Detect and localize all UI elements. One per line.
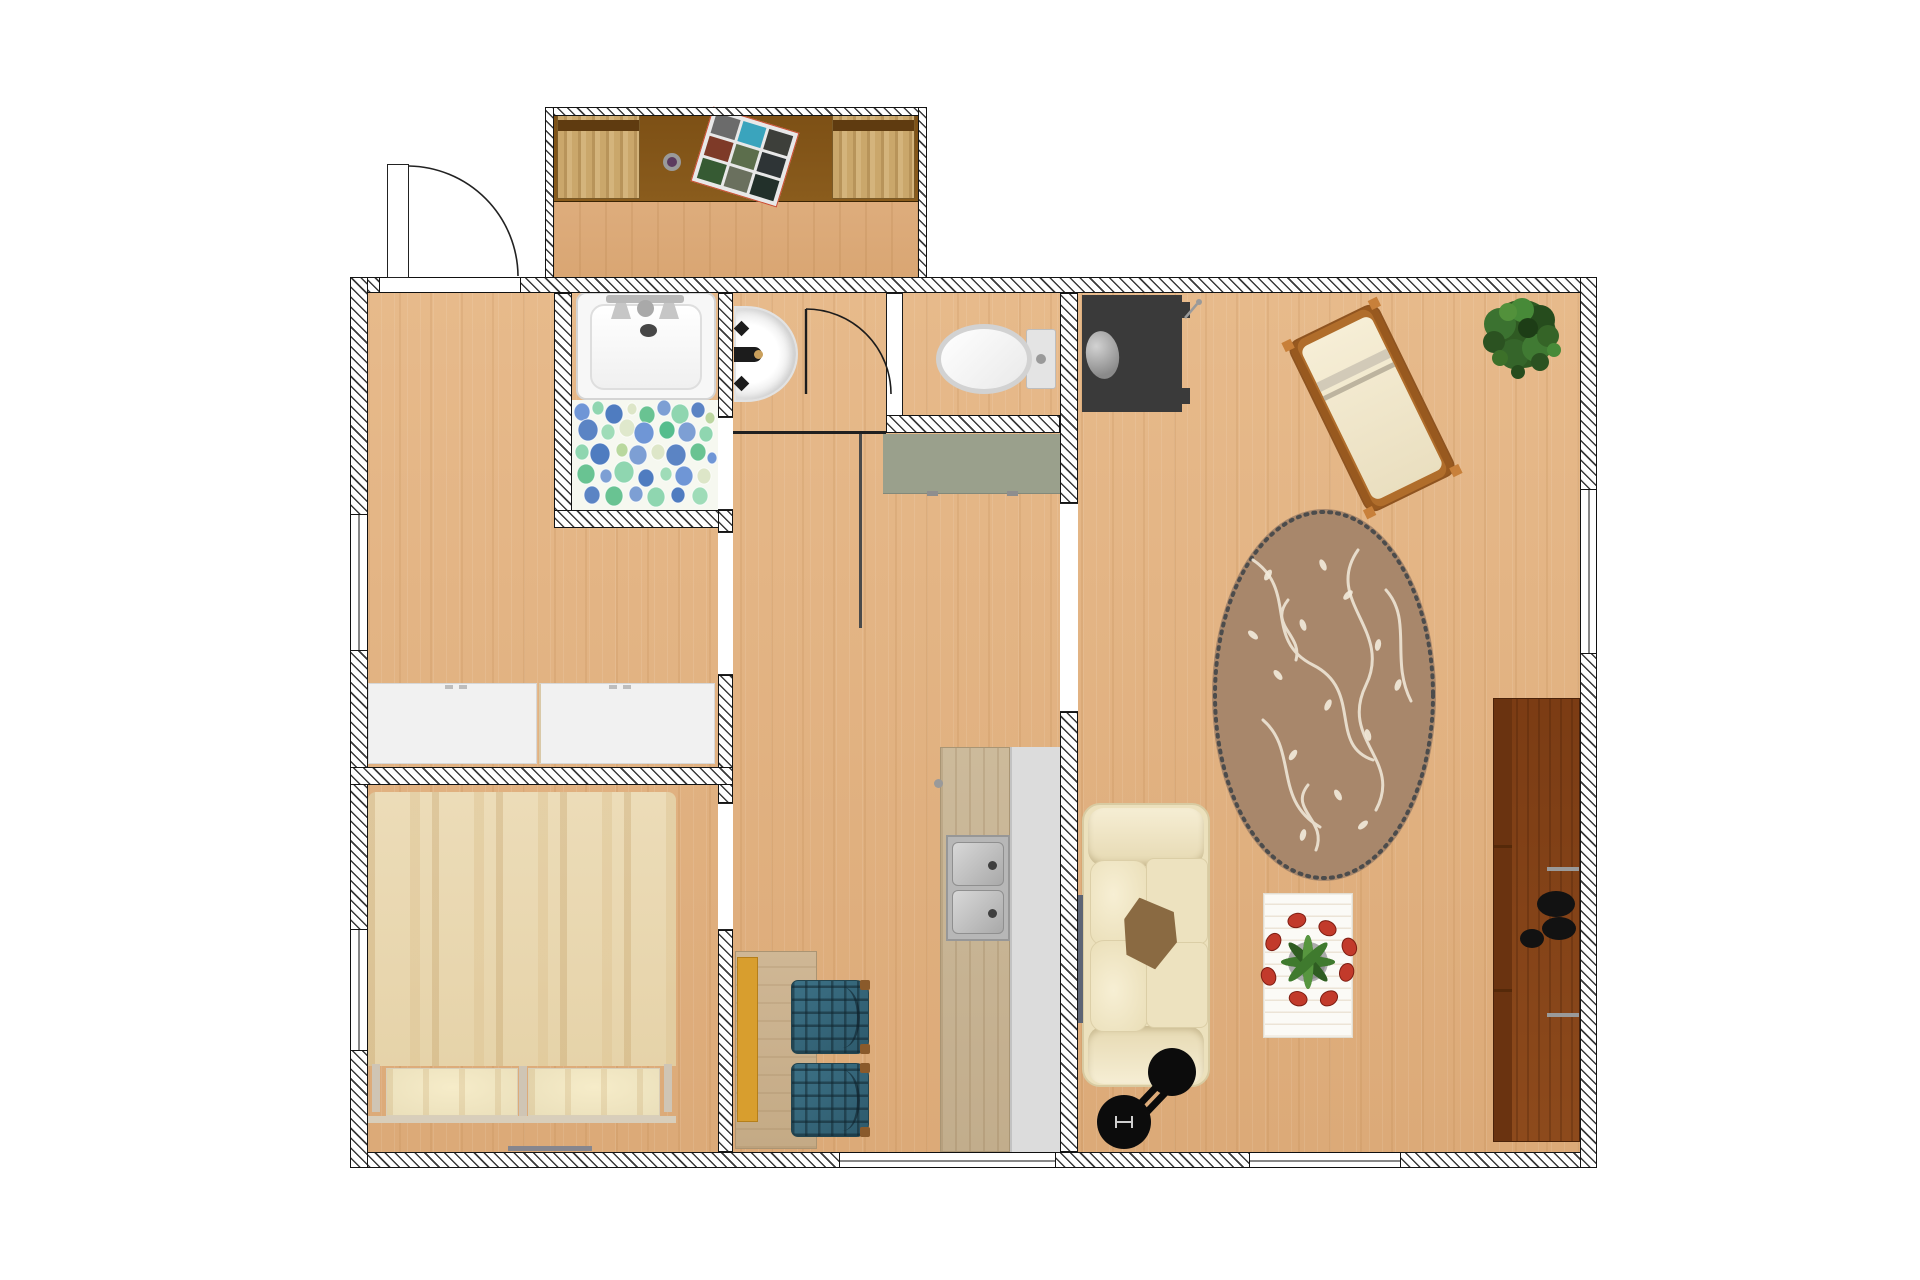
chair-backrest-curve xyxy=(825,987,860,1048)
tub-faucet-spout xyxy=(637,300,654,317)
closet-handle xyxy=(459,685,467,689)
wall-top xyxy=(520,277,1597,293)
decorative-bowl[interactable] xyxy=(663,153,681,171)
floor-plan-canvas xyxy=(0,0,1920,1280)
tulip-centerpiece[interactable] xyxy=(1263,893,1353,1038)
photo xyxy=(704,135,734,162)
coffee-cup[interactable] xyxy=(1537,891,1575,917)
kitchen-sink[interactable] xyxy=(946,835,1010,941)
wall-w2 xyxy=(1060,712,1078,1152)
counter-handle xyxy=(1007,491,1018,496)
balcony-wall-right xyxy=(918,107,927,279)
photo xyxy=(697,158,727,185)
photo xyxy=(730,143,760,170)
sideboard-shelf-line xyxy=(1494,845,1512,848)
photo xyxy=(737,121,767,148)
washroom-door[interactable] xyxy=(800,305,900,400)
upper-counter[interactable] xyxy=(883,434,1060,494)
potted-plant[interactable] xyxy=(1470,284,1574,388)
fitness-roller[interactable] xyxy=(1080,1028,1210,1158)
bed-frame-left xyxy=(372,1064,380,1112)
double-bed[interactable] xyxy=(368,792,676,1123)
radiator xyxy=(1078,895,1083,1023)
wall-left xyxy=(350,650,368,930)
closet-left[interactable] xyxy=(368,683,537,764)
wall-w1 xyxy=(718,930,733,1152)
window-left-upper[interactable] xyxy=(350,515,368,650)
basin-faucet-dot xyxy=(754,350,763,359)
wall-left xyxy=(350,1050,368,1168)
sideboard-shelf-line xyxy=(1494,989,1512,992)
bed-footboard xyxy=(368,1116,676,1123)
doorway-hall-kitchen[interactable] xyxy=(718,532,733,675)
wall-bathroom-bottom xyxy=(554,510,733,528)
dining-bench[interactable] xyxy=(737,957,758,1122)
wall-w2 xyxy=(1060,293,1078,503)
bed-pillow-right xyxy=(528,1068,660,1116)
entry-door-swing-arc xyxy=(385,160,525,282)
bed-pillow-left xyxy=(386,1068,518,1116)
window-right[interactable] xyxy=(1580,490,1597,653)
photo xyxy=(750,174,780,201)
tv-tab xyxy=(1181,388,1190,404)
photo xyxy=(764,129,794,156)
wall-bedroom-top xyxy=(350,767,733,785)
photo xyxy=(711,113,741,140)
wall-w1 xyxy=(718,510,733,532)
window-glass-line xyxy=(1588,490,1590,653)
dining-chair-2[interactable] xyxy=(791,1063,869,1137)
sideboard-side-rail xyxy=(1494,699,1512,1141)
chair-post xyxy=(860,980,870,990)
bed-pillow-divider xyxy=(519,1066,527,1116)
tv-antenna-icon xyxy=(1182,296,1206,322)
closet-handle xyxy=(445,685,453,689)
chair-backrest-curve xyxy=(825,1070,860,1131)
chair-post xyxy=(860,1044,870,1054)
window-bottom-living[interactable] xyxy=(1250,1152,1400,1168)
closet-right[interactable] xyxy=(539,683,715,764)
doorway-living[interactable] xyxy=(1060,503,1078,712)
balcony-chair-left[interactable] xyxy=(557,114,640,199)
sideboard-tick xyxy=(1547,1013,1579,1017)
closet-handle xyxy=(609,685,617,689)
bed-duvet xyxy=(368,792,676,1066)
balcony-chair-right[interactable] xyxy=(832,114,915,199)
toilet-seat xyxy=(941,329,1027,389)
area-rug[interactable] xyxy=(1208,505,1440,885)
window-left-lower[interactable] xyxy=(350,930,368,1050)
wall-washroom-bottom-line xyxy=(733,431,886,434)
bathtub[interactable] xyxy=(576,292,716,400)
window-glass-line xyxy=(358,515,360,650)
closet-handle xyxy=(623,685,631,689)
wall-bathroom-left xyxy=(554,293,572,528)
doorway-bathroom[interactable] xyxy=(718,417,733,510)
wall-bottom xyxy=(350,1152,840,1168)
wall-w1 xyxy=(718,293,733,417)
coffee-cup[interactable] xyxy=(1520,929,1544,948)
window-glass-line xyxy=(840,1160,1055,1162)
counter-white[interactable] xyxy=(1010,747,1060,1152)
tub-drain xyxy=(640,324,657,337)
wall-bottom xyxy=(1400,1152,1597,1168)
window-glass-line xyxy=(358,930,360,1050)
wall-wc-bottom xyxy=(886,415,1060,433)
window-bottom-kitchen[interactable] xyxy=(840,1152,1055,1168)
doorway-bedroom[interactable] xyxy=(718,803,733,930)
sink-drain xyxy=(988,861,997,870)
kitchen-divider-line xyxy=(859,433,862,628)
wall-right xyxy=(1580,653,1597,1168)
wall-bottom xyxy=(1055,1152,1250,1168)
sideboard-tick xyxy=(1547,867,1579,871)
mosaic-floor xyxy=(572,400,718,510)
dining-chair-1[interactable] xyxy=(791,980,869,1054)
balcony-wall-top xyxy=(545,107,927,116)
counter-handle xyxy=(927,491,938,496)
counter-knob xyxy=(934,779,943,788)
chair-post xyxy=(860,1127,870,1137)
counter-wood[interactable] xyxy=(940,747,1010,1152)
sink-drain xyxy=(988,909,997,918)
balcony-wall-left xyxy=(545,107,554,279)
window-glass-line xyxy=(1250,1160,1400,1162)
wall-left xyxy=(350,277,368,515)
toilet-bowl[interactable] xyxy=(936,324,1032,394)
bed-frame-right xyxy=(664,1064,672,1112)
tv-set[interactable] xyxy=(1082,295,1182,412)
floor-mat[interactable] xyxy=(508,1146,592,1151)
photo xyxy=(757,152,787,179)
photo xyxy=(723,166,753,193)
tv-tube xyxy=(1083,329,1122,381)
coffee-cup[interactable] xyxy=(1542,917,1576,940)
chair-back-bar xyxy=(558,120,639,131)
sideboard[interactable] xyxy=(1493,698,1580,1142)
flush-button xyxy=(1036,354,1046,364)
chair-post xyxy=(860,1063,870,1073)
chair-back-bar xyxy=(833,120,914,131)
wall-right xyxy=(1580,277,1597,490)
